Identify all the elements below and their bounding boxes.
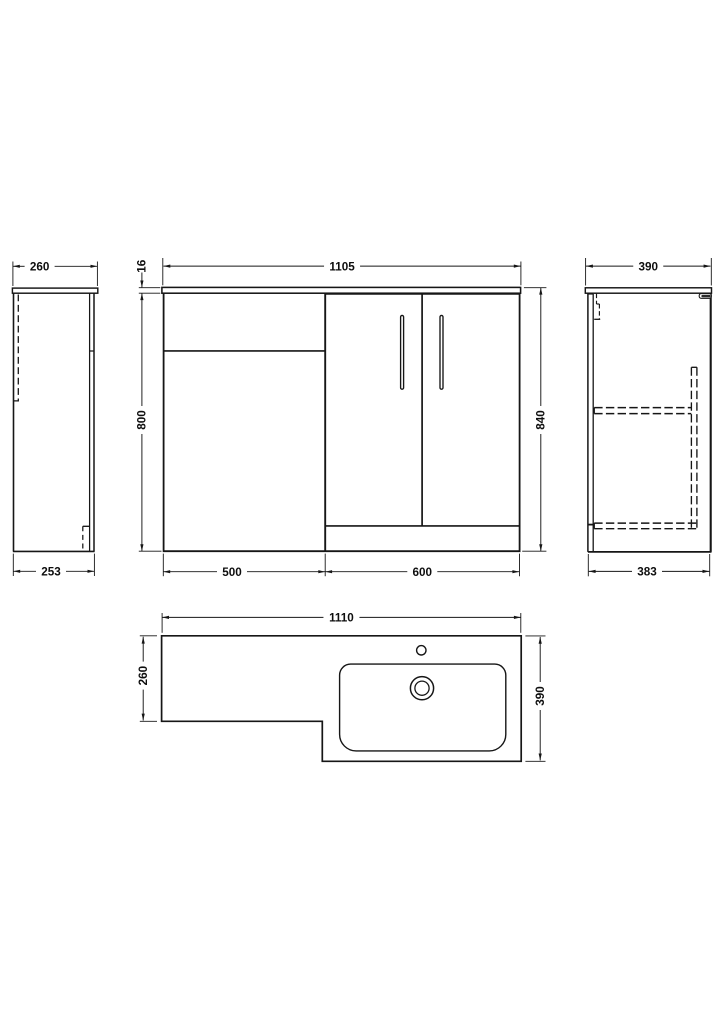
svg-text:1110: 1110 xyxy=(329,612,354,625)
svg-text:390: 390 xyxy=(638,260,658,273)
svg-text:260: 260 xyxy=(137,665,150,685)
svg-text:390: 390 xyxy=(534,686,547,706)
svg-text:16: 16 xyxy=(136,259,149,273)
svg-text:383: 383 xyxy=(637,566,657,579)
svg-text:840: 840 xyxy=(535,410,548,430)
svg-text:253: 253 xyxy=(41,566,61,579)
svg-text:600: 600 xyxy=(413,566,433,579)
svg-text:800: 800 xyxy=(136,410,149,430)
svg-text:1105: 1105 xyxy=(329,260,355,273)
svg-text:500: 500 xyxy=(222,566,242,579)
svg-text:260: 260 xyxy=(30,261,50,274)
